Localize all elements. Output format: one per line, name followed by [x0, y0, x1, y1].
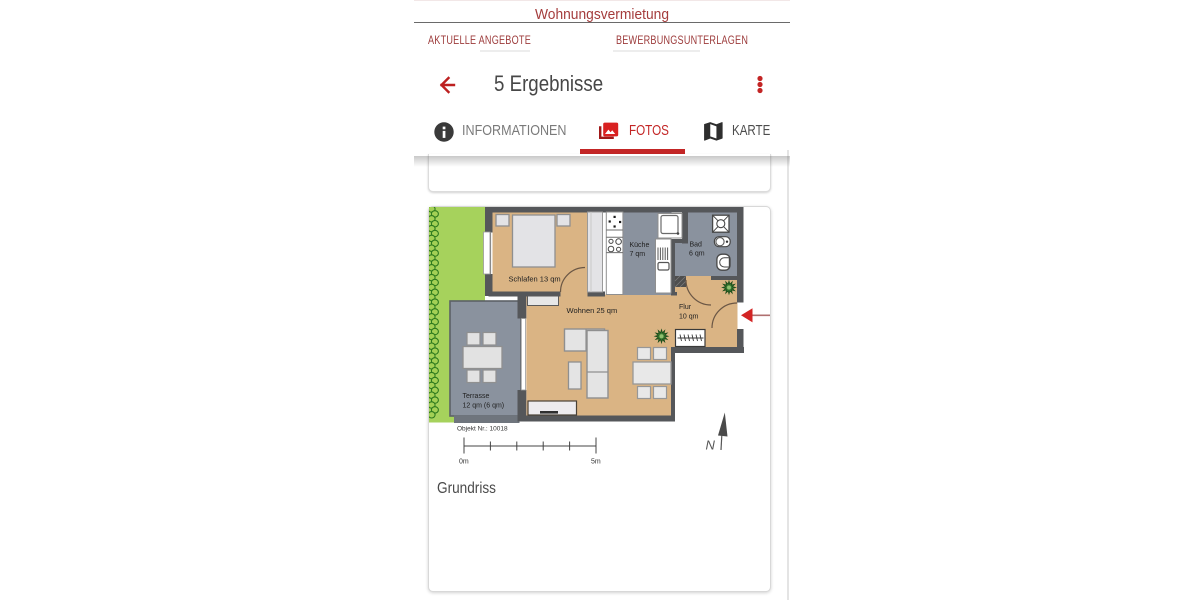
svg-text:Flur: Flur	[679, 304, 692, 311]
svg-text:10 qm: 10 qm	[679, 314, 699, 321]
svg-text:Objekt Nr.: 10018: Objekt Nr.: 10018	[457, 426, 508, 433]
svg-text:Küche: Küche	[630, 242, 650, 249]
svg-text:Schlafen 13 qm: Schlafen 13 qm	[509, 275, 561, 284]
svg-text:Wohnen 25 qm: Wohnen 25 qm	[567, 306, 618, 315]
svg-text:5m: 5m	[591, 459, 601, 466]
svg-text:N: N	[706, 438, 716, 453]
svg-text:Bad: Bad	[690, 242, 703, 249]
svg-text:Terrasse: Terrasse	[463, 393, 490, 400]
svg-text:12 qm (6 qm): 12 qm (6 qm)	[463, 403, 505, 410]
svg-text:0m: 0m	[459, 459, 469, 466]
svg-text:7 qm: 7 qm	[630, 251, 646, 258]
svg-text:6 qm: 6 qm	[689, 251, 705, 258]
